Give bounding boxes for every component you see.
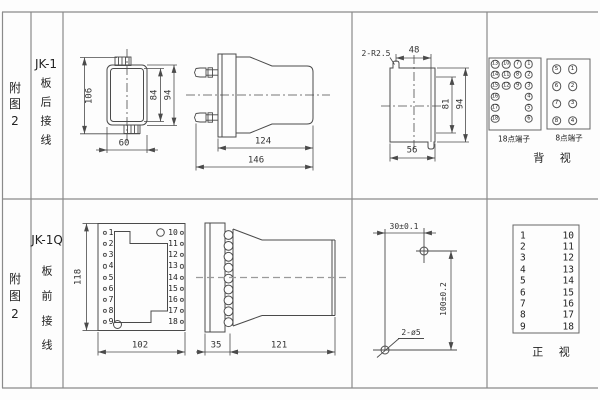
terminal-dot: [179, 264, 183, 268]
terminal-18pt-17: 17: [491, 103, 500, 112]
terminal-18pt-13: 13: [491, 60, 500, 69]
list-num-9: 9: [520, 322, 526, 332]
list-num-10: 10: [563, 231, 574, 241]
terminal-dot: [102, 320, 106, 324]
terminal-dot: [102, 264, 106, 268]
terminal-dot: [102, 231, 106, 235]
terminal-symbols-layer: 1310711411821512931641751865162738412345…: [0, 0, 600, 400]
terminal-num-15: 15: [168, 285, 178, 293]
terminal-dot: [179, 298, 183, 302]
terminal-num-11: 11: [168, 240, 178, 248]
terminal-num-13: 13: [168, 262, 178, 270]
terminal-num-10: 10: [168, 229, 178, 237]
terminal-num-3: 3: [109, 251, 114, 259]
terminal-18pt-1: 1: [525, 60, 534, 69]
terminal-18pt-9: 9: [513, 82, 522, 91]
terminal-8pt-6: 6: [552, 82, 562, 92]
list-num-12: 12: [563, 254, 574, 264]
terminal-dot: [102, 253, 106, 257]
terminal-dot: [102, 309, 106, 313]
terminal-8pt-7: 7: [552, 99, 562, 109]
terminal-8pt-4: 4: [568, 116, 578, 126]
terminal-dot: [102, 275, 106, 279]
terminal-num-16: 16: [168, 296, 178, 304]
terminal-num-18: 18: [168, 318, 178, 326]
terminal-dot: [102, 242, 106, 246]
terminal-num-5: 5: [109, 274, 114, 282]
terminal-8pt-5: 5: [552, 64, 562, 74]
terminal-num-1: 1: [109, 229, 114, 237]
terminal-18pt-7: 7: [513, 60, 522, 69]
terminal-8pt-3: 3: [568, 99, 578, 109]
terminal-18pt-18: 18: [491, 114, 500, 123]
list-num-16: 16: [563, 299, 574, 309]
list-num-4: 4: [520, 265, 526, 275]
terminal-num-2: 2: [109, 240, 114, 248]
list-num-11: 11: [563, 242, 574, 252]
terminal-18pt-16: 16: [491, 92, 500, 101]
terminal-18pt-11: 11: [502, 71, 511, 80]
terminal-18pt-3: 3: [525, 82, 534, 91]
terminal-num-14: 14: [168, 274, 178, 282]
terminal-dot: [179, 275, 183, 279]
terminal-num-9: 9: [109, 318, 114, 326]
terminal-num-7: 7: [109, 296, 114, 304]
terminal-num-12: 12: [168, 251, 178, 259]
terminal-dot: [102, 298, 106, 302]
list-num-6: 6: [520, 288, 526, 298]
terminal-8pt-1: 1: [568, 64, 578, 74]
list-num-1: 1: [520, 231, 526, 241]
terminal-num-17: 17: [168, 307, 178, 315]
terminal-dot: [102, 287, 106, 291]
terminal-18pt-14: 14: [491, 71, 500, 80]
list-num-5: 5: [520, 276, 526, 286]
terminal-dot: [179, 320, 183, 324]
list-num-15: 15: [563, 288, 574, 298]
installation-drawing-sheet: 附 图 2 JK-1 板 后 接 线 106 84 94 60 124 146 …: [0, 0, 600, 400]
list-num-8: 8: [520, 311, 526, 321]
terminal-dot: [179, 231, 183, 235]
list-num-3: 3: [520, 254, 526, 264]
list-num-13: 13: [563, 265, 574, 275]
terminal-18pt-6: 6: [525, 114, 534, 123]
terminal-18pt-2: 2: [525, 71, 534, 80]
terminal-18pt-5: 5: [525, 103, 534, 112]
terminal-8pt-2: 2: [568, 82, 578, 92]
list-num-17: 17: [563, 311, 574, 321]
terminal-dot: [179, 242, 183, 246]
terminal-18pt-10: 10: [502, 60, 511, 69]
list-num-2: 2: [520, 242, 526, 252]
terminal-num-4: 4: [109, 262, 114, 270]
list-num-14: 14: [563, 276, 574, 286]
terminal-18pt-12: 12: [502, 82, 511, 91]
terminal-18pt-15: 15: [491, 82, 500, 91]
list-num-7: 7: [520, 299, 526, 309]
terminal-dot: [179, 287, 183, 291]
terminal-18pt-4: 4: [525, 92, 534, 101]
terminal-dot: [179, 253, 183, 257]
list-num-18: 18: [563, 322, 574, 332]
terminal-18pt-8: 8: [513, 71, 522, 80]
terminal-dot: [179, 309, 183, 313]
terminal-num-6: 6: [109, 285, 114, 293]
terminal-8pt-8: 8: [552, 116, 562, 126]
terminal-num-8: 8: [109, 307, 114, 315]
